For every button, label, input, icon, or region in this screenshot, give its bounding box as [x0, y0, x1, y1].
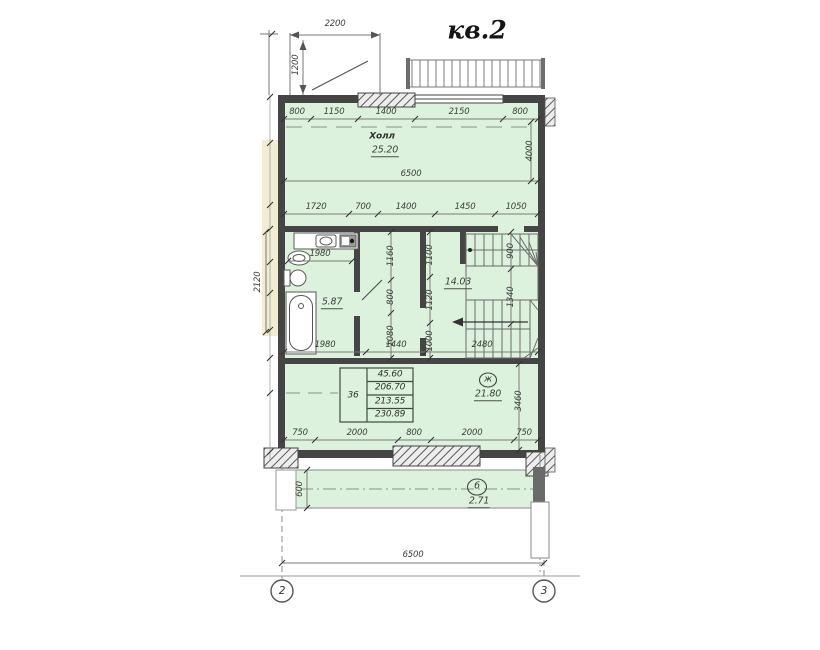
- toilet: [284, 270, 306, 286]
- washbasin: [288, 251, 310, 265]
- bathtub: [286, 292, 316, 354]
- dim-lower-row: 1440: [386, 341, 407, 350]
- dim-porch-depth: 1200: [292, 55, 301, 76]
- table-value: 213.55: [375, 398, 405, 407]
- axis-marker-right: 3: [541, 586, 547, 597]
- dim-bottom-row: 800: [406, 429, 422, 438]
- kitchen-counter: [294, 233, 358, 249]
- balcony-pier: [276, 470, 296, 510]
- dim-mid-row: 1450: [455, 203, 476, 212]
- dim-corridor-b: 1000: [426, 331, 435, 352]
- dim-mid-row: 1400: [396, 203, 417, 212]
- dim-top-row: 1150: [324, 108, 345, 117]
- dim-bath-width: 1980: [310, 250, 331, 259]
- dim-corridor-a: 1160: [387, 246, 396, 267]
- room-area-hall: 25.20: [371, 145, 399, 157]
- dim-left-side: 2120: [254, 272, 263, 293]
- dim-hall-width: 6500: [401, 170, 422, 179]
- dim-top-row: 800: [512, 108, 528, 117]
- table-apartment-no: 36: [347, 392, 358, 401]
- table-value: 230.89: [375, 411, 405, 420]
- dim-bottom-row: 750: [516, 429, 532, 438]
- dim-top-row: 1400: [376, 108, 397, 117]
- dim-lower-row: 1980: [315, 341, 336, 350]
- dim-mid-row: 700: [355, 203, 371, 212]
- balcony-area: 2.71: [468, 496, 490, 508]
- dim-room-depth: 3460: [515, 391, 524, 412]
- dim-top-row: 800: [289, 108, 305, 117]
- entrance-door-swing: [312, 61, 368, 90]
- dim-bottom-row: 2000: [462, 429, 483, 438]
- right-column: [531, 502, 549, 558]
- dim-corridor-b: 1120: [426, 290, 435, 311]
- dim-bottom-row: 750: [292, 429, 308, 438]
- dim-bottom-row: 2000: [347, 429, 368, 438]
- dim-hall-depth: 4000: [526, 141, 535, 162]
- dim-lower-row: 2480: [472, 341, 493, 350]
- room-name-hall: Холл: [369, 133, 395, 142]
- table-value: 206.70: [375, 384, 405, 393]
- room-area-bathroom: 5.87: [321, 297, 343, 309]
- dim-corridor-a: 800: [387, 289, 396, 305]
- dim-stair-col: 900: [507, 243, 516, 259]
- right-wall-stub: [533, 467, 545, 503]
- room-area-stair-hall: 14.03: [444, 277, 472, 289]
- dim-top-row: 2150: [449, 108, 470, 117]
- dim-mid-row: 1050: [506, 203, 527, 212]
- table-value: 45.60: [378, 371, 403, 380]
- axis-marker-left: 2: [279, 586, 285, 597]
- room-area: 21.80: [474, 389, 502, 401]
- dim-balcony-depth: 600: [296, 481, 305, 497]
- balcony-railing: [406, 58, 545, 89]
- balcony-mark: б: [474, 483, 479, 492]
- floorplan-page: кв.2 2200 1200 800 1150 1400 2150 800 Хо…: [0, 0, 820, 650]
- dim-stair-col: 1340: [507, 287, 516, 308]
- dim-overall-width: 6500: [403, 551, 424, 560]
- room-mark: ж: [484, 376, 492, 385]
- dim-porch-width: 2200: [325, 20, 346, 29]
- dim-corridor-b: 1100: [426, 245, 435, 266]
- drawing-title: кв.2: [447, 16, 506, 45]
- dim-mid-row: 1720: [306, 203, 327, 212]
